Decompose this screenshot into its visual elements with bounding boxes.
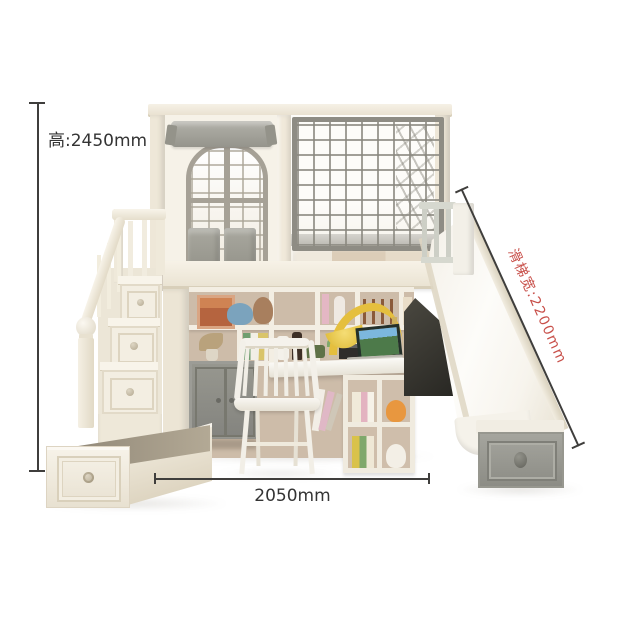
newel-post [78, 338, 94, 428]
stair-drawer [110, 326, 158, 366]
height-dimension-label: 高:2450mm [48, 126, 147, 151]
chair-spindle [274, 348, 278, 396]
chair-leg [256, 410, 261, 466]
drawer-knob [130, 342, 138, 350]
width-dimension-line [155, 478, 430, 480]
window-mullion-h [191, 198, 263, 203]
slide-gate-slats [422, 208, 454, 262]
height-dimension-line [37, 103, 39, 472]
book-pink [322, 294, 329, 324]
width-dimension-cap-left [154, 473, 156, 484]
drawer-knob [83, 472, 94, 483]
width-dimension-label: 2050mm [155, 486, 430, 506]
bed-fascia-board [163, 261, 437, 289]
plush-white [386, 444, 406, 468]
chair-stretcher [245, 442, 309, 446]
stair-baluster [142, 220, 147, 277]
slide-gate-top-rail [419, 202, 456, 209]
shelf-divider [315, 287, 320, 330]
chair-spindle [253, 348, 259, 396]
bookcase-books [352, 436, 374, 468]
width-dimension-cap-right [428, 473, 430, 484]
storage-drawer-front [46, 446, 130, 508]
chair [232, 336, 322, 476]
chair-leg [294, 410, 299, 466]
plush-orange [386, 400, 406, 422]
stair-baluster [128, 221, 133, 277]
plush-toy-blue [227, 303, 253, 325]
stair-step-tread [100, 362, 158, 370]
height-dimension-cap-bottom [29, 470, 45, 472]
bookcase-divider-h [348, 422, 410, 427]
slide-base-box [478, 432, 564, 488]
chair-spindle [284, 348, 289, 396]
stair-drawer [102, 370, 158, 414]
plush-toy-brown [253, 297, 273, 324]
chair-stile [308, 340, 320, 400]
drawer-knob [514, 452, 527, 468]
plant-vase [206, 349, 218, 361]
drawer-knob [137, 299, 144, 306]
stair-step-tread [108, 318, 160, 326]
chair-spindle [264, 348, 269, 396]
curtain-valance [170, 121, 274, 147]
stair-step-tread [118, 276, 162, 284]
shelf-board [189, 287, 414, 292]
drawer-knob [126, 388, 134, 396]
slide-gate-bottom-rail [421, 257, 455, 263]
bookcase-books [352, 392, 374, 422]
product-dimension-image: 高:2450mm 2050mm 滑梯宽:2200mm [0, 0, 640, 640]
height-dimension-cap-top [29, 102, 45, 104]
cabinet-knob [216, 398, 221, 403]
chair-spindle [293, 348, 299, 396]
stair-drawer [120, 284, 160, 322]
slide-dimension-cap-top [455, 186, 469, 194]
